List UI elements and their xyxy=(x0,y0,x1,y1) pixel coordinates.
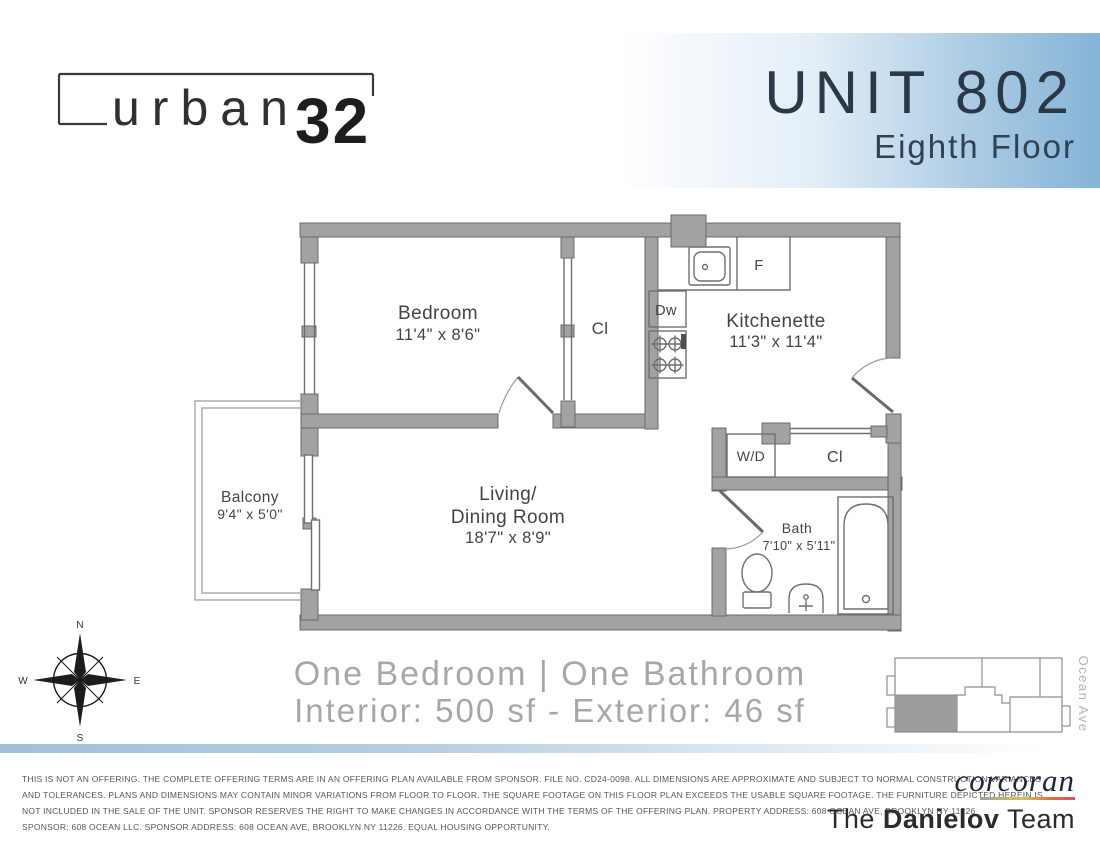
wall-bedroom-bottom-left xyxy=(301,414,498,428)
balcony-label: Balcony xyxy=(221,489,279,506)
closet2-label: Cl xyxy=(827,449,843,466)
tub-drain xyxy=(863,596,870,603)
bath-dims: 7'10" x 5'11" xyxy=(763,539,836,553)
bedroom-dims: 11'4" x 8'6" xyxy=(396,326,481,344)
balcony-dims: 9'4" x 5'0" xyxy=(217,506,283,522)
dishwasher-label: Dw xyxy=(655,303,677,319)
windows-and-balcony xyxy=(195,258,572,600)
bath-door-leaf xyxy=(720,491,763,532)
footer-divider-bar xyxy=(0,744,1100,753)
team-name-bold: Danielov xyxy=(883,804,1000,834)
compass-n: N xyxy=(76,620,83,631)
wall-left-lower xyxy=(301,589,318,620)
summary-rooms: One Bedroom | One Bathroom xyxy=(0,657,1100,692)
toilet-tank xyxy=(743,592,771,608)
tub-basin xyxy=(844,504,888,609)
bath-label: Bath xyxy=(782,520,812,536)
wall-left-upper xyxy=(301,237,318,263)
bath-door-arc xyxy=(722,532,763,549)
wall-right-lower xyxy=(888,443,901,631)
bedroom-door-leaf xyxy=(518,377,553,413)
toilet-bowl xyxy=(742,554,772,592)
entry-door-leaf xyxy=(852,378,893,412)
closet2-sliding-door xyxy=(790,429,871,434)
team-name: The Danielov Team xyxy=(827,804,1075,835)
kitchenette-dims: 11'3" x 11'4" xyxy=(729,333,822,351)
balcony-slider-panel-2 xyxy=(312,520,320,590)
corcoran-logo: corcoran xyxy=(827,766,1075,796)
entry-door-arc xyxy=(852,358,890,378)
wall-closet-stub-bottom xyxy=(561,401,575,427)
fridge-label: F xyxy=(754,257,764,274)
stove-knobs xyxy=(681,334,686,349)
bath-faucet xyxy=(799,600,813,611)
sink-basin xyxy=(694,252,725,281)
brokerage-block: corcoran The Danielov Team xyxy=(827,766,1075,835)
wall-bottom xyxy=(300,615,901,630)
wall-closet-stub-top xyxy=(561,237,574,258)
bedroom-door-arc xyxy=(499,377,518,413)
team-name-pre: The xyxy=(827,804,883,834)
wall-column xyxy=(671,215,706,247)
wall-entry-tbar xyxy=(871,426,887,437)
floorplan-sheet: { "header": { "logo_word": "urban", "log… xyxy=(0,0,1100,850)
compass-s: S xyxy=(77,733,84,744)
wall-entry-hinge xyxy=(886,414,901,443)
balcony-slider-panel-1 xyxy=(305,455,313,523)
living-dims: 18'7" x 8'9" xyxy=(465,529,551,547)
bath-fixtures xyxy=(742,497,893,614)
bath-faucet-dot xyxy=(804,595,808,599)
wall-top xyxy=(300,223,900,237)
living-label-2: Dining Room xyxy=(451,507,565,528)
wall-bath-top xyxy=(712,477,902,490)
summary-area: Interior: 500 sf - Exterior: 46 sf xyxy=(0,694,1100,728)
wall-bath-left-lower xyxy=(712,548,726,616)
unit-summary: One Bedroom | One Bathroom Interior: 500… xyxy=(0,657,1100,728)
living-label-1: Living/ xyxy=(479,484,537,505)
wall-kitchen-left xyxy=(645,237,658,429)
kitchenette-label: Kitchenette xyxy=(726,311,825,332)
walls xyxy=(300,215,902,631)
bedroom-label: Bedroom xyxy=(398,303,478,324)
sink-drain xyxy=(703,265,708,270)
closet1-label: Cl xyxy=(592,319,609,338)
wall-right-upper xyxy=(886,237,900,358)
team-name-post: Team xyxy=(999,804,1075,834)
washer-dryer-label: W/D xyxy=(737,448,765,464)
